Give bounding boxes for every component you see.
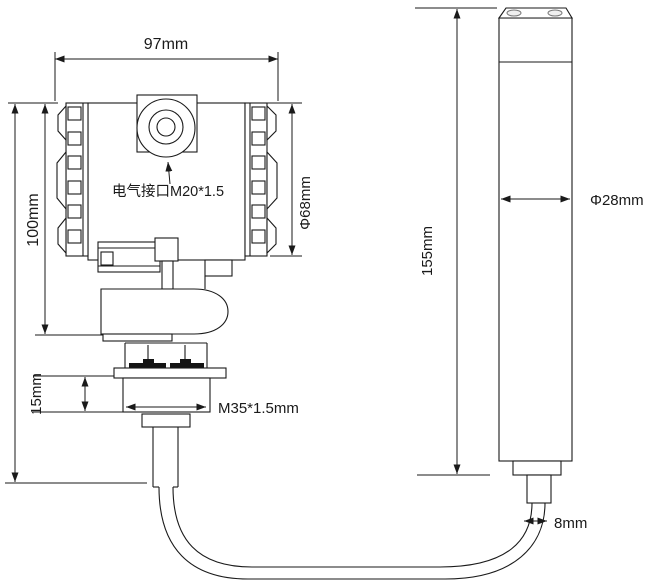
probe-top-hole [548,10,562,16]
fin-slot [252,156,265,169]
dim-label-probe-diameter: Φ28mm [590,192,644,209]
dim-label-cable-diameter: 8mm [554,515,587,532]
dim-probe-length: 155mm [415,8,497,475]
fin-lobe [57,152,66,209]
fin-slot [252,205,265,218]
dim-label-thread-spec: M35*1.5mm [218,400,299,417]
fin-lobe [267,152,277,209]
fin-slot [252,181,265,194]
cooling-fins-left [57,103,88,256]
probe-top-hole [507,10,521,16]
fin-slot [68,205,81,218]
fin-slot [68,156,81,169]
sensor-chamber [101,289,228,334]
process-connection [101,289,228,487]
cable [159,487,545,579]
dim-label-housing-diameter: Φ68mm [297,176,314,230]
cable-inner-line [173,487,532,567]
fin-slot [68,230,81,243]
dimension-diagram: 97mm 100mm Φ68mm 电气接口M20*1.5 [0,0,650,584]
dim-housing-width: 97mm [55,36,278,101]
dim-label-housing-height: 100mm [25,193,42,246]
seal-bar [170,363,204,368]
transmitter-view [57,95,545,579]
port-inner-circle [157,118,175,136]
probe-cable-gland [527,475,551,503]
stem-tube [153,427,178,487]
probe-step [513,461,561,475]
fin-slot [252,230,265,243]
cable-outer-line [159,487,545,579]
dim-label-housing-width: 97mm [144,36,188,53]
bolt-head [180,359,191,363]
probe-view [499,8,572,503]
seal-bar [129,363,166,368]
fin-slot [68,132,81,145]
fin-slot [68,107,81,120]
fin-lobe [58,218,66,253]
dim-label-thread-height: 15mm [28,373,45,415]
bolt-head [143,359,154,363]
chamber-plate [103,334,172,341]
cooling-fins-right [245,103,277,256]
fin-lobe [58,106,66,140]
flange-plate [114,368,226,378]
fin-slot [68,181,81,194]
dim-label-probe-length: 155mm [419,226,436,276]
collar [142,414,190,427]
dimension-drawing-canvas: 97mm 100mm Φ68mm 电气接口M20*1.5 [0,0,650,584]
dim-thread-height: 15mm [28,373,123,415]
bolt-section [125,343,207,368]
fin-slot [252,132,265,145]
fin-lobe [267,106,276,140]
fin-slot [252,107,265,120]
dim-cable-diameter: 8mm [524,515,587,532]
probe-body [499,18,572,461]
electrical-port [137,95,197,157]
fin-lobe [267,218,276,253]
label-electrical-port: 电气接口M20*1.5 [112,183,224,200]
